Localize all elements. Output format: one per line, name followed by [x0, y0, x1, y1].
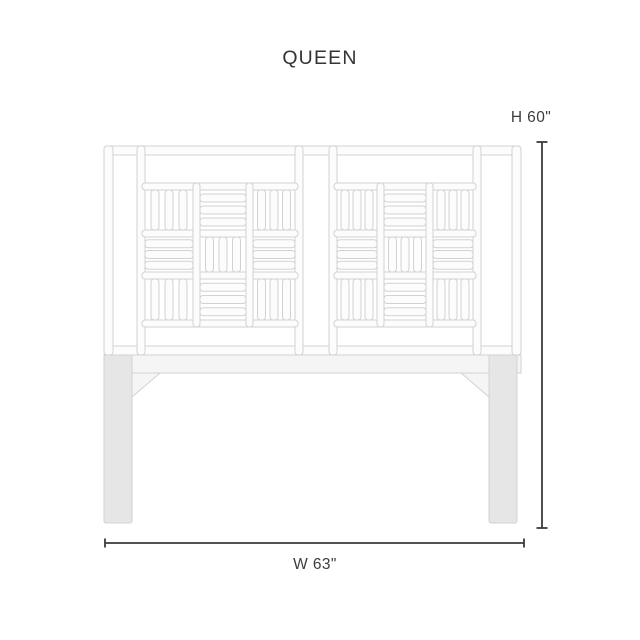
height-dimension-line: [537, 142, 548, 528]
horizontal-slat: [384, 194, 426, 202]
height-dimension-label: H 60": [481, 109, 581, 127]
vertical-slat: [283, 279, 291, 320]
horizontal-slat: [200, 194, 246, 202]
vertical-slat: [341, 279, 349, 320]
size-diagram-page: QUEEN H 60" W 63": [0, 0, 640, 640]
corner-brace-left: [132, 373, 160, 397]
panel-column-tube-1: [426, 183, 433, 327]
panel-cross-tube-1: [334, 230, 476, 237]
vertical-slat: [179, 279, 187, 320]
vertical-slat: [165, 190, 173, 230]
vertical-slat: [151, 279, 159, 320]
horizontal-slat: [200, 206, 246, 214]
panel-cross-tube-3: [142, 320, 298, 327]
headboard-illustration: [0, 0, 640, 640]
horizontal-slat: [384, 283, 426, 291]
vertical-slat: [219, 237, 227, 272]
vertical-slat: [461, 190, 469, 230]
upright-tube-5: [512, 146, 521, 355]
panel-cross-tube-2: [334, 272, 476, 279]
vertical-slat: [449, 190, 457, 230]
leg-left: [104, 355, 132, 523]
vertical-slat: [449, 279, 457, 320]
vertical-slat: [179, 190, 187, 230]
vertical-slat: [258, 190, 266, 230]
horizontal-slat: [384, 218, 426, 226]
vertical-slat: [233, 237, 241, 272]
horizontal-slat: [145, 240, 193, 248]
panel-cross-tube-2: [142, 272, 298, 279]
panel-column-tube-0: [377, 183, 384, 327]
corner-brace-right: [461, 373, 489, 397]
vertical-slat: [437, 190, 445, 230]
horizontal-slat: [433, 261, 473, 269]
horizontal-slat: [145, 261, 193, 269]
vertical-slat: [414, 237, 422, 272]
headboard-fretwork-panel-left: [142, 183, 298, 327]
vertical-slat: [270, 190, 278, 230]
vertical-slat: [165, 279, 173, 320]
top-rail-tube: [104, 146, 521, 155]
headboard-base-and-legs: [104, 355, 521, 523]
horizontal-slat: [253, 240, 295, 248]
panel-column-tube-1: [246, 183, 253, 327]
horizontal-slat: [200, 308, 246, 316]
vertical-slat: [365, 190, 373, 230]
vertical-slat: [206, 237, 214, 272]
horizontal-slat: [384, 206, 426, 214]
upper-bottom-rail-tube: [104, 346, 521, 355]
vertical-slat: [151, 190, 159, 230]
horizontal-slat: [200, 296, 246, 304]
vertical-slat: [283, 190, 291, 230]
horizontal-slat: [384, 296, 426, 304]
horizontal-slat: [384, 308, 426, 316]
vertical-slat: [258, 279, 266, 320]
headboard-fretwork-panel-right: [334, 183, 476, 327]
panel-cross-tube-3: [334, 320, 476, 327]
horizontal-slat: [337, 240, 377, 248]
vertical-slat: [353, 190, 361, 230]
width-dimension-label: W 63": [265, 556, 365, 574]
vertical-slat: [353, 279, 361, 320]
horizontal-slat: [200, 218, 246, 226]
vertical-slat: [461, 279, 469, 320]
panel-column-tube-0: [193, 183, 200, 327]
horizontal-slat: [200, 283, 246, 291]
horizontal-slat: [253, 261, 295, 269]
vertical-slat: [341, 190, 349, 230]
upright-tube-0: [104, 146, 113, 355]
vertical-slat: [365, 279, 373, 320]
vertical-slat: [437, 279, 445, 320]
leg-right: [489, 355, 517, 523]
panel-cross-tube-0: [334, 183, 476, 190]
horizontal-slat: [145, 251, 193, 259]
horizontal-slat: [433, 251, 473, 259]
horizontal-slat: [433, 240, 473, 248]
vertical-slat: [270, 279, 278, 320]
base-rail: [104, 355, 521, 373]
horizontal-slat: [337, 251, 377, 259]
panel-cross-tube-0: [142, 183, 298, 190]
panel-cross-tube-1: [142, 230, 298, 237]
horizontal-slat: [337, 261, 377, 269]
width-dimension-line: [105, 539, 524, 548]
horizontal-slat: [253, 251, 295, 259]
vertical-slat: [401, 237, 409, 272]
vertical-slat: [389, 237, 397, 272]
